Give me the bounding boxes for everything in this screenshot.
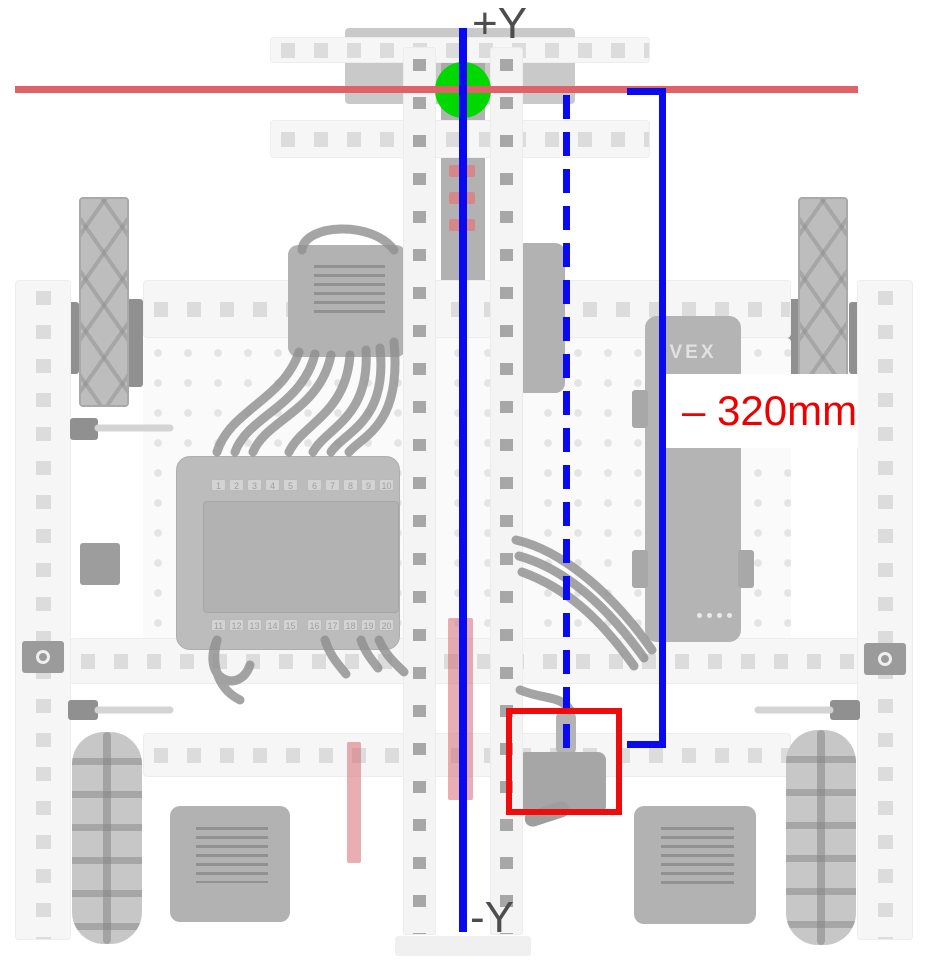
robot-top-view-diagram: VEX 12345678910 11121314151617181920 (0, 0, 928, 960)
sensor-highlight-box (506, 708, 622, 815)
robot-bearing-right (864, 643, 906, 675)
brain-port-7: 7 (325, 479, 340, 491)
motor-vents (314, 265, 385, 319)
robot-motor-bottom-left (170, 806, 290, 922)
robot-left-bushing-bottom (68, 700, 98, 720)
sensor-offset-dashed-line (563, 95, 570, 750)
brain-port-6: 6 (307, 479, 322, 491)
brain-ports-top: 12345678910 (211, 479, 394, 491)
battery-charge-dots (697, 613, 732, 618)
y-axis-line (459, 28, 467, 932)
robot-wheel-bottom-left (72, 732, 142, 944)
robot-center-tower-left-rail (403, 47, 436, 935)
brain-port-3: 3 (247, 479, 262, 491)
brain-port-5: 5 (283, 479, 298, 491)
robot-wheel-bottom-right (786, 730, 856, 945)
robot-motor-top-center (288, 245, 406, 357)
brain-port-11: 11 (211, 619, 226, 631)
robot-left-side-wheel (79, 197, 129, 407)
front-reference-line (15, 86, 858, 93)
brain-port-1: 1 (211, 479, 226, 491)
robot-motor-bottom-right (634, 806, 756, 924)
brain-port-13: 13 (247, 619, 262, 631)
robot-bearing-left (22, 641, 64, 673)
robot-left-rail (15, 280, 71, 940)
brain-port-19: 19 (361, 619, 376, 631)
battery-tab (738, 550, 754, 588)
robot-right-rail (857, 280, 913, 940)
brain-port-12: 12 (229, 619, 244, 631)
y-axis-positive-label: +Y (472, 2, 527, 46)
brain-port-16: 16 (307, 619, 322, 631)
motor-vents (196, 827, 268, 883)
motor-vents (661, 827, 734, 884)
measurement-label: – 320mm (666, 374, 858, 448)
robot-left-bushing-mid (70, 418, 98, 440)
brain-port-9: 9 (361, 479, 376, 491)
robot-brain: 12345678910 11121314151617181920 (176, 456, 400, 650)
brain-port-18: 18 (343, 619, 358, 631)
brain-ports-bottom: 11121314151617181920 (211, 619, 394, 631)
robot-right-bushing-bottom (830, 700, 860, 720)
brain-port-14: 14 (265, 619, 280, 631)
y-axis-negative-label: -Y (470, 896, 514, 940)
brain-port-20: 20 (379, 619, 394, 631)
brain-screen (203, 501, 399, 613)
brain-port-4: 4 (265, 479, 280, 491)
ghost-offset-bar-left (347, 742, 361, 863)
brain-port-10: 10 (379, 479, 394, 491)
measurement-bracket (627, 88, 666, 748)
brain-port-2: 2 (229, 479, 244, 491)
brain-port-8: 8 (343, 479, 358, 491)
brain-port-15: 15 (283, 619, 298, 631)
robot-left-bumper (80, 543, 120, 585)
brain-port-17: 17 (325, 619, 340, 631)
robot-left-hub-inner (127, 299, 143, 387)
